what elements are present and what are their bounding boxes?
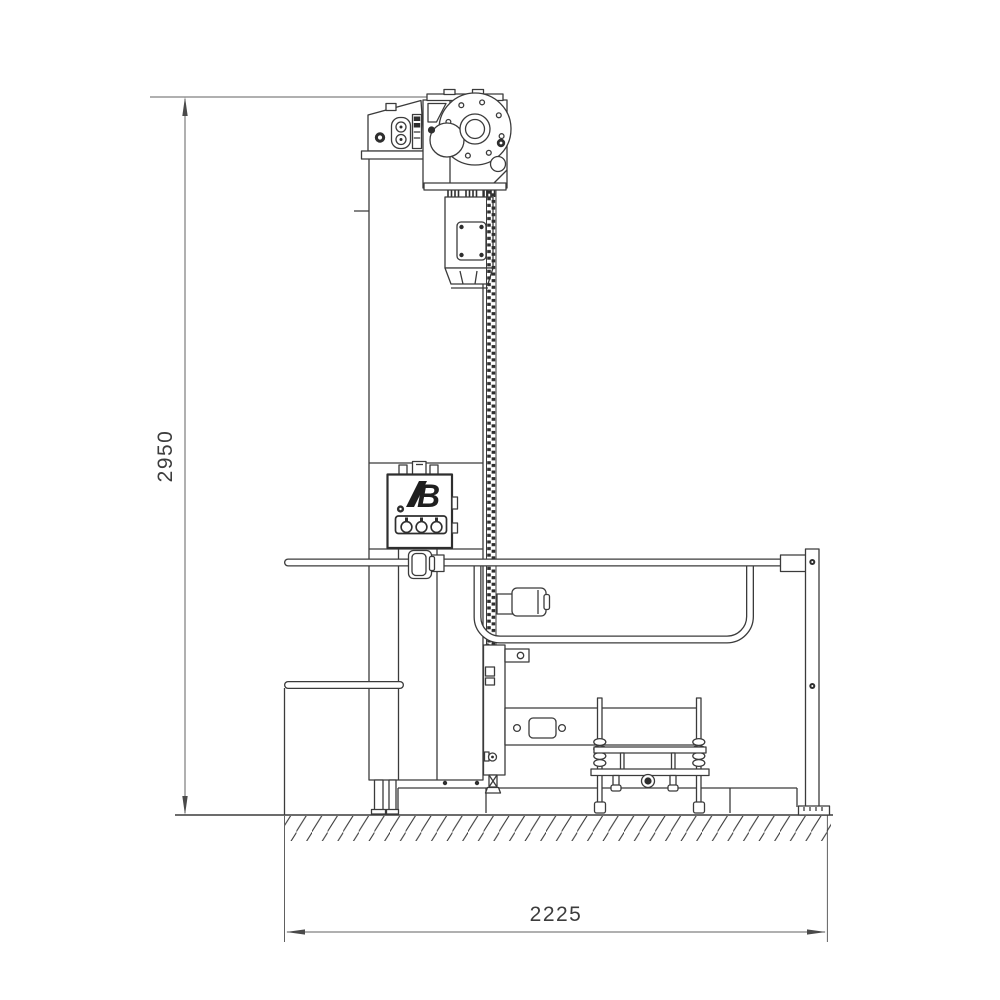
- button-panel: [396, 516, 447, 534]
- chain-strip: [487, 190, 497, 646]
- machine-elevation-drawing: 2950 2225: [0, 0, 1000, 1000]
- arrow-down-icon: [182, 796, 187, 815]
- drawing-page: 2950 2225: [0, 0, 1000, 1000]
- latch-block: [486, 667, 495, 676]
- rail-end-sleeve: [781, 555, 807, 572]
- push-button-icon: [401, 522, 412, 533]
- latch-block: [486, 678, 495, 685]
- post-body: [806, 549, 820, 808]
- housing-base-plate: [362, 151, 431, 159]
- lift-chain: [485, 190, 496, 653]
- motor-end-bell: [445, 268, 493, 284]
- bolt-icon: [475, 781, 479, 785]
- lower-boss: [491, 157, 506, 172]
- foot-pad: [486, 788, 501, 794]
- bolt-icon: [443, 781, 447, 785]
- mast-foot: [387, 810, 399, 815]
- top-housing-assembly: [362, 101, 431, 160]
- arrow-up-icon: [182, 97, 187, 116]
- cradle-inner-rod: [672, 753, 676, 771]
- hook-icon: [670, 776, 676, 786]
- mast-foot: [372, 810, 386, 815]
- cable-gland: [413, 462, 427, 475]
- gearbox-boss: [430, 123, 464, 157]
- ground-hatching: [285, 816, 831, 841]
- cradle-foot: [694, 802, 705, 813]
- pendant-clip: [430, 557, 435, 571]
- push-button-icon: [431, 522, 442, 533]
- push-button-icon: [416, 522, 427, 533]
- gearmotor-tab: [544, 595, 550, 610]
- width-dimension-label: 2225: [530, 903, 583, 926]
- arrow-left-icon: [286, 929, 305, 934]
- arrow-right-icon: [807, 929, 826, 934]
- cradle-foot: [595, 802, 606, 813]
- gearbox: [423, 90, 511, 198]
- logo-letter: B: [417, 478, 440, 514]
- gearbox-bottom-plate: [424, 183, 506, 190]
- pendant-bracket: [409, 551, 435, 579]
- housing-knob: [386, 104, 396, 111]
- post-base-plate: [799, 806, 830, 815]
- height-dimension-label: 2950: [154, 430, 177, 483]
- carriage-gearmotor: [512, 588, 546, 616]
- ground: [175, 815, 833, 841]
- bolt-icon: [428, 126, 435, 133]
- mast-leg: [389, 780, 396, 811]
- mast-leg: [375, 780, 384, 811]
- drive-motor: [445, 197, 493, 288]
- carriage-bracket: [497, 594, 513, 614]
- cradle-inner-rod: [621, 753, 625, 771]
- flange-hub: [460, 114, 490, 144]
- hinge: [452, 497, 458, 509]
- hinge: [452, 523, 458, 533]
- hook-icon: [613, 776, 619, 786]
- right-post: [799, 549, 830, 815]
- cradle-top-bar: [594, 747, 706, 753]
